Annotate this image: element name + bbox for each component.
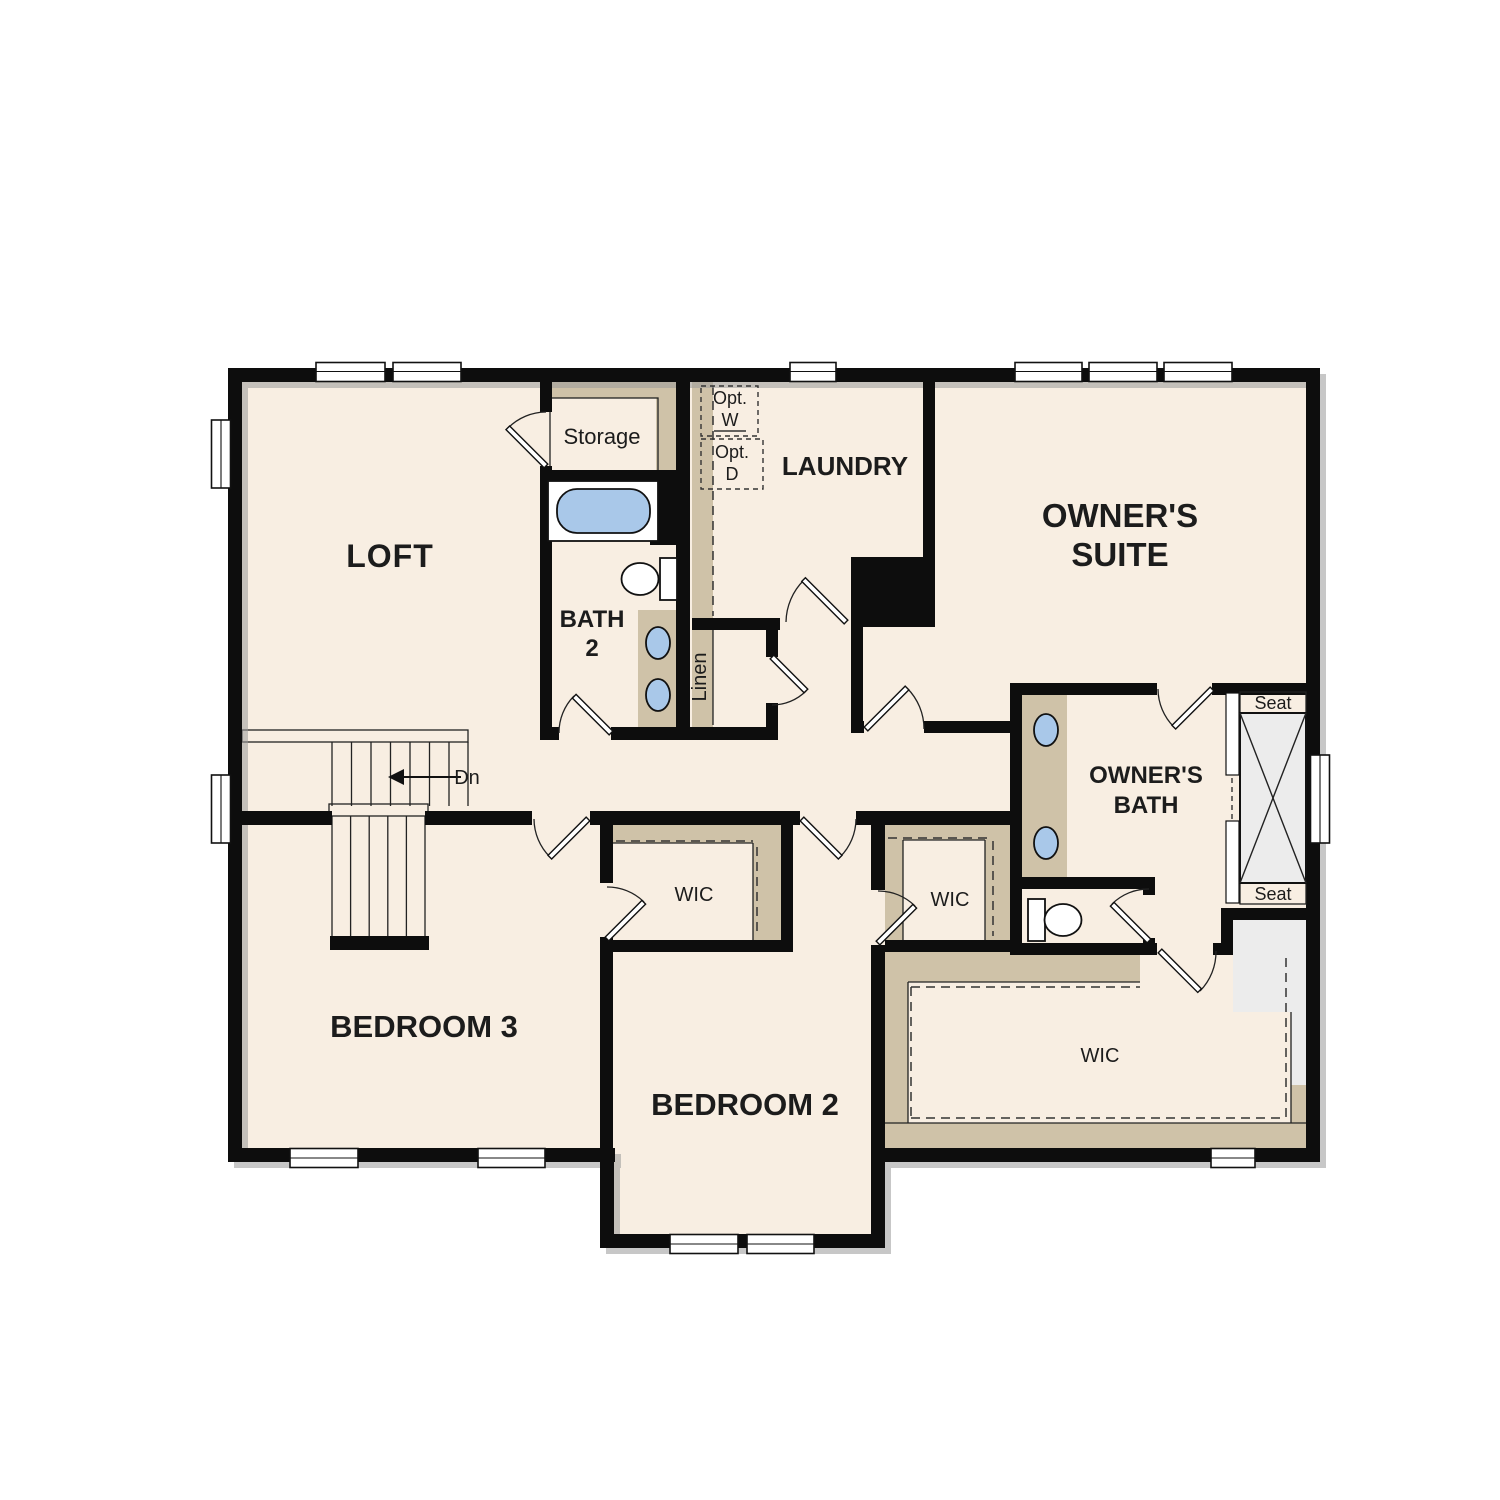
wall-segment [885, 940, 1022, 952]
window [212, 420, 231, 488]
wall-segment [851, 627, 863, 733]
owners-wic-tile-area [1233, 920, 1306, 1012]
storage-trim-top [550, 382, 656, 398]
wall-segment [613, 940, 793, 952]
window [747, 1235, 814, 1254]
window [316, 363, 385, 382]
wall-segment [856, 811, 1010, 825]
wall-segment [330, 936, 429, 950]
sink-icon [646, 627, 670, 659]
laundry-cabinet-strip [692, 382, 713, 618]
wall-segment [924, 721, 1022, 733]
label-stairs-down: Dn [454, 767, 480, 789]
wall-segment [242, 811, 332, 825]
window [790, 363, 836, 382]
room-label-storage: Storage [563, 424, 640, 449]
window [1089, 363, 1157, 382]
storage-trim-right [656, 382, 676, 477]
wall-segment [871, 945, 885, 1148]
room-label-owners-suite-line1: OWNER'S [1042, 497, 1198, 534]
wall-segment [1022, 877, 1155, 889]
wall-segment [1010, 683, 1022, 955]
label-opt-dryer-line1: Opt. [715, 442, 749, 462]
wall-segment [676, 382, 690, 740]
label-shower-seat-bottom: Seat [1254, 884, 1291, 904]
room-label-bath2-line1: BATH [560, 606, 625, 633]
owners-wic-tile-strip [1291, 1012, 1306, 1085]
sink-icon [646, 679, 670, 711]
shower-glass-panel [1226, 693, 1239, 775]
wall-segment [228, 1148, 615, 1162]
wall-segment [600, 1234, 885, 1248]
wall-segment [871, 1148, 885, 1248]
bathtub-icon [548, 481, 658, 541]
shower-glass-panel [1226, 821, 1239, 903]
window [1211, 1149, 1255, 1168]
floor-plan-drawing: LOFT Storage BATH 2 Opt. W Opt. D LAUNDR… [0, 0, 1500, 1500]
owners-wic-trim-bottom [885, 1123, 1306, 1148]
wic2-trim-right [985, 840, 1010, 940]
sink-icon [1034, 827, 1058, 859]
label-shower-seat-top: Seat [1254, 693, 1291, 713]
wall-segment [766, 703, 778, 727]
owners-wic-trim-top [885, 952, 1140, 982]
wall-segment [851, 721, 864, 733]
wall-segment [1010, 683, 1157, 695]
wall-segment [600, 937, 613, 1148]
room-label-bath2-line2: 2 [585, 635, 598, 662]
window [670, 1235, 738, 1254]
wall-segment [590, 811, 800, 825]
wall-segment [425, 811, 532, 825]
window [290, 1149, 358, 1168]
window [212, 775, 231, 843]
owners-wic-trim-left [885, 982, 908, 1123]
window [1311, 755, 1330, 843]
label-opt-dryer-line2: D [726, 464, 739, 484]
room-label-linen: Linen [689, 653, 711, 702]
room-label-owners-suite-line2: SUITE [1071, 536, 1168, 573]
wall-segment [1143, 877, 1155, 895]
window [1015, 363, 1082, 382]
wall-segment [540, 382, 552, 412]
label-opt-washer-line1: Opt. [713, 388, 747, 408]
wall-segment [1221, 908, 1233, 955]
wall-segment [600, 811, 613, 883]
room-label-wic-bedroom3: WIC [675, 884, 714, 906]
floor-plan-page: LOFT Storage BATH 2 Opt. W Opt. D LAUNDR… [0, 0, 1500, 1500]
room-label-wic-owners: WIC [1081, 1045, 1120, 1067]
window [478, 1149, 545, 1168]
wall-segment [540, 727, 559, 740]
room-label-owners-bath-line2: BATH [1114, 792, 1179, 819]
room-label-bedroom2: BEDROOM 2 [651, 1087, 839, 1122]
wall-segment [871, 825, 885, 890]
room-label-loft: LOFT [346, 538, 434, 574]
wall-segment [781, 825, 793, 952]
label-opt-washer-line2: W [722, 410, 739, 430]
wall-segment [600, 1148, 614, 1248]
room-label-owners-bath-line1: OWNER'S [1089, 762, 1203, 789]
wall-segment [766, 630, 778, 657]
sink-icon [1034, 714, 1058, 746]
owners-wic-trim-strip [1291, 1085, 1306, 1123]
chase-block [851, 557, 935, 627]
room-label-wic-bedroom2: WIC [931, 889, 970, 911]
room-label-laundry: LAUNDRY [782, 451, 908, 481]
wall-segment [692, 618, 780, 630]
wall-segment [1010, 943, 1157, 955]
window [1164, 363, 1232, 382]
wall-segment [611, 727, 778, 740]
wall-segment [923, 382, 935, 557]
room-label-bedroom3: BEDROOM 3 [330, 1009, 518, 1044]
wall-segment [1228, 908, 1320, 920]
window [393, 363, 461, 382]
